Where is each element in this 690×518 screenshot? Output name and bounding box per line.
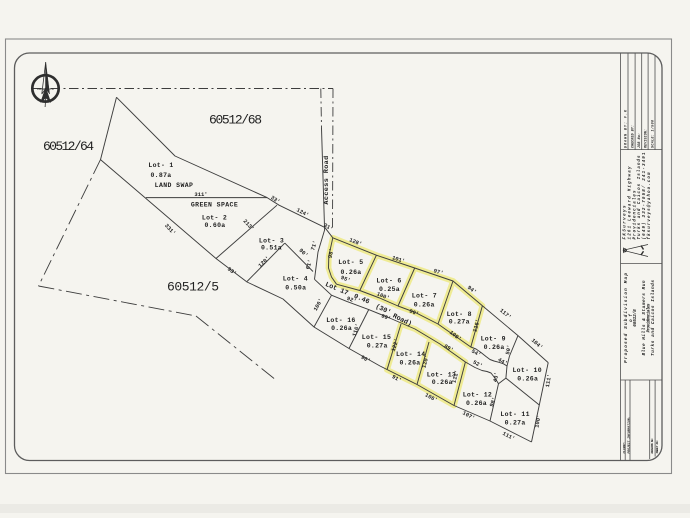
svg-text:Lot- 10: Lot- 10 (512, 367, 541, 374)
svg-text:DRAWN BY: F.K: DRAWN BY: F.K (623, 109, 627, 148)
svg-text:FKSurveys: FKSurveys (623, 205, 627, 239)
svg-text:0.26a: 0.26a (517, 376, 538, 383)
svg-text:Lot- 2: Lot- 2 (202, 214, 227, 221)
svg-text:Turks and Caicos Islands: Turks and Caicos Islands (651, 280, 656, 356)
svg-text:Lot- 9: Lot- 9 (481, 336, 506, 343)
svg-text:Lot- 12: Lot- 12 (463, 391, 492, 398)
svg-text:Proposed Subdivision Map: Proposed Subdivision Map (624, 273, 629, 363)
svg-text:0.26a: 0.26a (466, 400, 487, 407)
svg-text:60512/68: 60512/68 (209, 113, 262, 128)
svg-text:(649) 332-7058/ 241-3491: (649) 332-7058/ 241-3491 (642, 152, 647, 239)
svg-text:Lot- 3: Lot- 3 (259, 237, 284, 244)
svg-text:REVISION:: REVISION: (643, 129, 647, 148)
svg-text:0.26a: 0.26a (414, 302, 435, 309)
svg-text:Turks and Caicos Islands: Turks and Caicos Islands (637, 155, 642, 239)
svg-text:FKSURVEYS: FKSURVEYS (37, 88, 53, 91)
svg-text:0.27a: 0.27a (505, 419, 526, 426)
svg-text:CHECKED BY:: CHECKED BY: (630, 125, 634, 148)
svg-text:0.27a: 0.27a (367, 343, 388, 350)
svg-text:60512/5: 60512/5 (167, 280, 219, 295)
svg-text:Lot- 4: Lot- 4 (283, 276, 308, 283)
svg-text:Lot- 16: Lot- 16 (326, 317, 355, 324)
svg-text:60512/8: 60512/8 (633, 309, 638, 327)
svg-text:Lot- 6: Lot- 6 (376, 277, 401, 284)
svg-text:1261 Leeward Highway: 1261 Leeward Highway (627, 166, 632, 239)
svg-text:Lot- 8: Lot- 8 (447, 311, 472, 318)
svg-text:PROJECT INFORMATION:: PROJECT INFORMATION: (627, 416, 630, 453)
svg-text:Access Road: Access Road (323, 155, 331, 204)
svg-text:60512/64: 60512/64 (43, 139, 94, 154)
svg-text:0.87a: 0.87a (150, 172, 171, 179)
svg-text:Lot- 14: Lot- 14 (396, 351, 425, 358)
svg-text:Lot- 1: Lot- 1 (148, 162, 173, 169)
svg-text:Lot- 15: Lot- 15 (362, 334, 391, 341)
svg-text:Lot- 11: Lot- 11 (500, 411, 529, 418)
svg-text:Lot- 5: Lot- 5 (338, 259, 363, 266)
svg-text:JOB No:: JOB No: (637, 133, 641, 148)
svg-text:0.26a: 0.26a (331, 325, 352, 332)
svg-text:0.50a: 0.50a (285, 285, 306, 292)
svg-text:Lot- 7: Lot- 7 (412, 293, 437, 300)
svg-text:Providenciales: Providenciales (632, 190, 637, 239)
svg-text:0.26a: 0.26a (399, 359, 420, 366)
svg-text:fksurveys@yahoo.com: fksurveys@yahoo.com (647, 172, 652, 239)
svg-text:0.60a: 0.60a (204, 222, 225, 229)
svg-text:DRAWING No:: DRAWING No: (651, 437, 654, 453)
svg-text:SCALE: 1/500: SCALE: 1/500 (650, 120, 654, 148)
svg-text:CLIENT:: CLIENT: (623, 441, 626, 453)
svg-text:GREEN SPACE: GREEN SPACE (191, 202, 238, 209)
svg-text:SHEET No:: SHEET No: (656, 439, 659, 453)
svg-text:0.51a: 0.51a (261, 245, 282, 252)
svg-text:LAND SWAP: LAND SWAP (155, 182, 194, 189)
svg-text:0.26a: 0.26a (484, 344, 505, 351)
svg-text:311': 311' (194, 191, 207, 198)
svg-text:0.27a: 0.27a (449, 319, 470, 326)
